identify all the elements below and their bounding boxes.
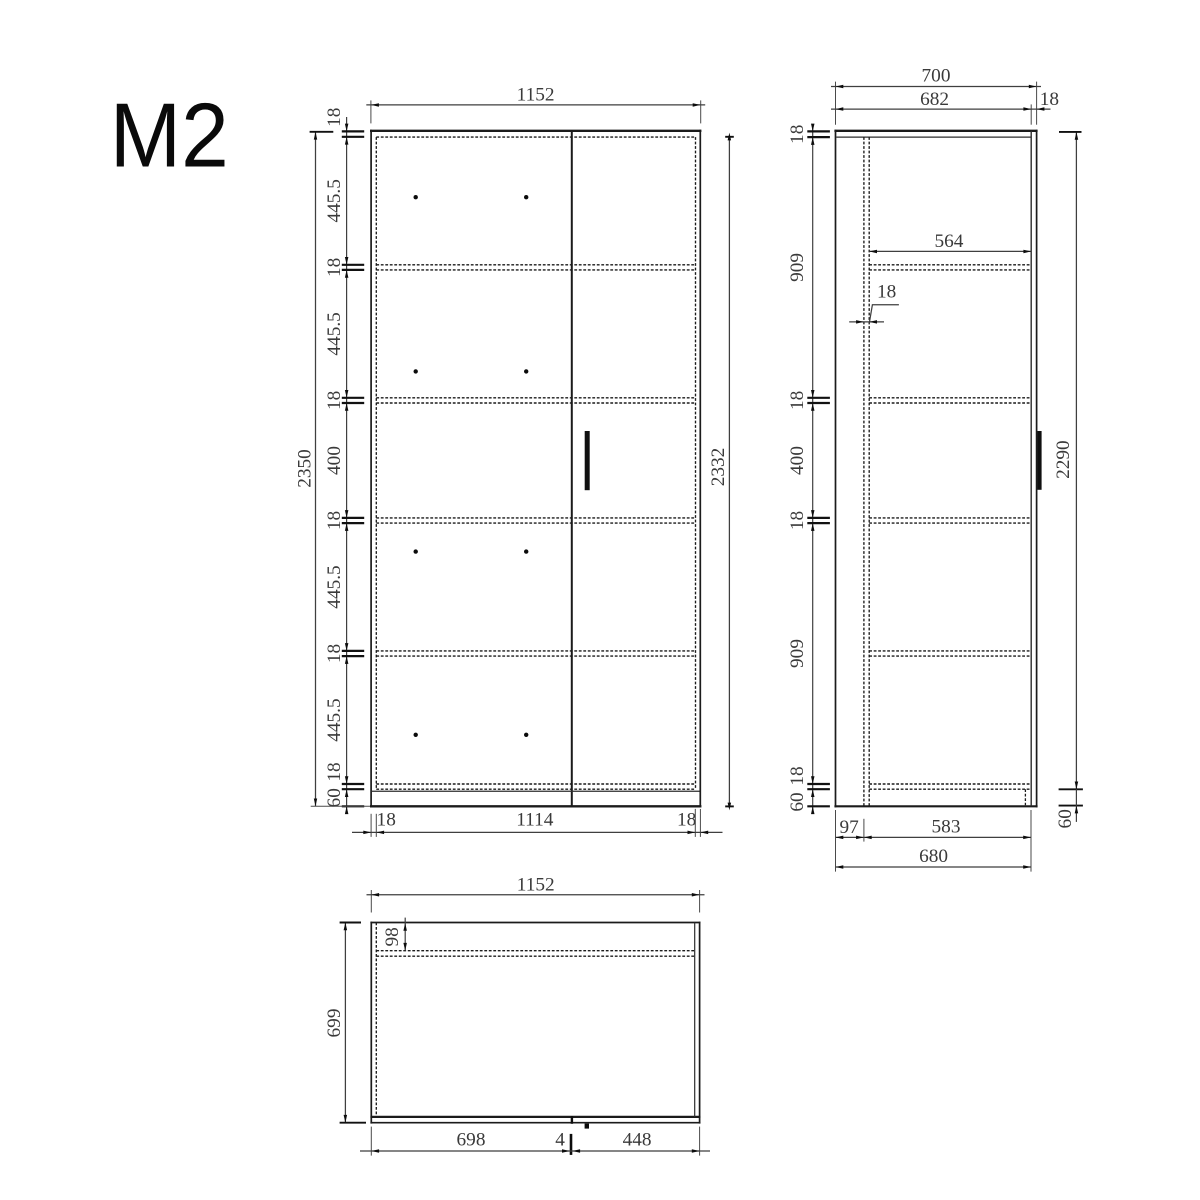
svg-text:18: 18 bbox=[324, 258, 345, 277]
svg-text:18: 18 bbox=[324, 644, 345, 663]
svg-text:448: 448 bbox=[623, 1130, 652, 1151]
svg-text:400: 400 bbox=[787, 446, 808, 475]
svg-text:2332: 2332 bbox=[708, 448, 729, 487]
svg-text:909: 909 bbox=[787, 639, 808, 668]
svg-text:60: 60 bbox=[1055, 809, 1076, 828]
svg-text:18: 18 bbox=[1040, 89, 1059, 110]
svg-text:1152: 1152 bbox=[517, 85, 555, 106]
svg-text:18: 18 bbox=[877, 282, 896, 303]
svg-text:682: 682 bbox=[920, 89, 949, 110]
svg-text:18: 18 bbox=[787, 766, 808, 785]
svg-text:18: 18 bbox=[677, 809, 696, 830]
svg-text:18: 18 bbox=[324, 511, 345, 530]
svg-text:699: 699 bbox=[324, 1009, 345, 1038]
svg-text:18: 18 bbox=[324, 391, 345, 410]
svg-text:909: 909 bbox=[787, 253, 808, 282]
svg-text:680: 680 bbox=[919, 846, 948, 867]
svg-text:18: 18 bbox=[787, 511, 808, 530]
svg-text:60: 60 bbox=[787, 792, 808, 811]
svg-text:564: 564 bbox=[934, 231, 963, 252]
svg-text:18: 18 bbox=[324, 108, 345, 127]
svg-text:445.5: 445.5 bbox=[324, 179, 345, 222]
svg-text:445.5: 445.5 bbox=[324, 312, 345, 355]
svg-text:698: 698 bbox=[457, 1130, 486, 1151]
svg-text:1114: 1114 bbox=[516, 809, 553, 830]
svg-text:18: 18 bbox=[377, 809, 396, 830]
svg-text:2290: 2290 bbox=[1053, 440, 1074, 479]
svg-text:445.5: 445.5 bbox=[324, 565, 345, 608]
svg-text:400: 400 bbox=[324, 446, 345, 475]
svg-text:2350: 2350 bbox=[295, 449, 316, 488]
svg-text:18: 18 bbox=[324, 762, 345, 781]
svg-text:1152: 1152 bbox=[517, 875, 555, 896]
svg-text:97: 97 bbox=[839, 817, 859, 838]
svg-text:445.5: 445.5 bbox=[324, 698, 345, 741]
svg-text:18: 18 bbox=[787, 125, 808, 144]
svg-text:60: 60 bbox=[324, 788, 345, 807]
svg-text:4: 4 bbox=[555, 1130, 565, 1151]
svg-text:18: 18 bbox=[787, 391, 808, 410]
svg-text:98: 98 bbox=[382, 927, 403, 946]
svg-text:M2: M2 bbox=[110, 86, 229, 187]
svg-text:583: 583 bbox=[932, 817, 961, 838]
svg-text:700: 700 bbox=[922, 65, 951, 86]
